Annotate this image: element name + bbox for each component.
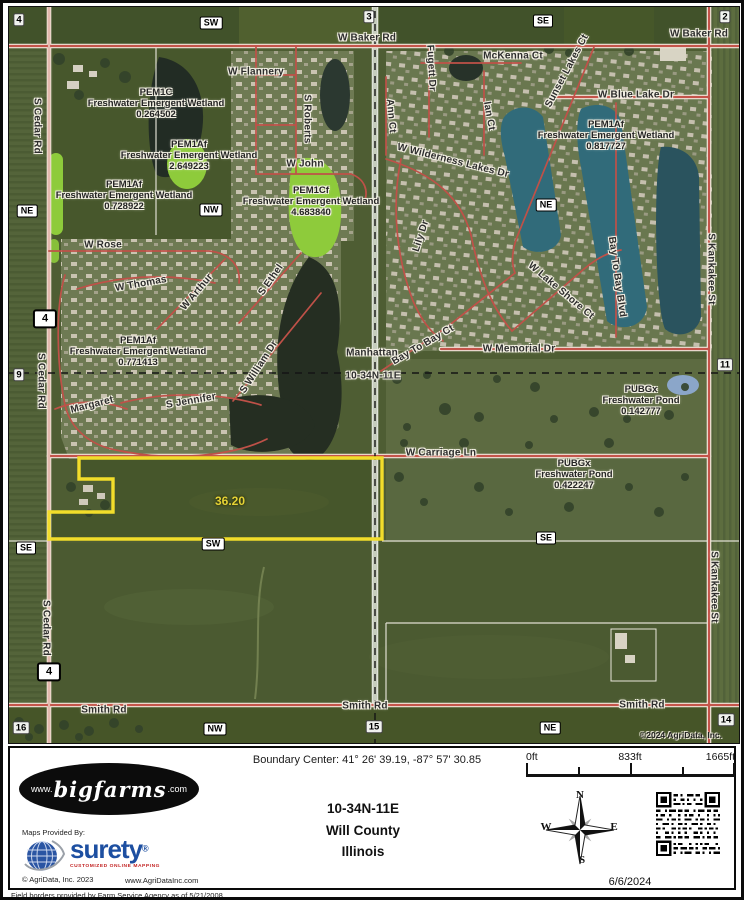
township-id: 10-34N-11E xyxy=(326,798,400,820)
scale-tick xyxy=(578,767,580,776)
agridata-website: www.AgriDataInc.com xyxy=(125,876,198,885)
scale-tick xyxy=(733,763,735,776)
aerial-imagery xyxy=(9,7,739,743)
surety-tagline: CUSTOMIZED ONLINE MAPPING xyxy=(70,864,160,869)
bigfarms-name: bigfarms xyxy=(53,777,166,802)
compass-s: S xyxy=(579,854,585,866)
report-date: 6/6/2024 xyxy=(609,876,652,888)
disclaimer-text: Field borders provided by Farm Service A… xyxy=(11,891,223,900)
compass-e: E xyxy=(610,821,617,833)
bigfarms-logo: www.bigfarms.com xyxy=(19,763,199,815)
compass-w: W xyxy=(541,821,552,833)
boundary-center: Boundary Center: 41° 26' 39.19, -87° 57'… xyxy=(253,754,481,766)
agridata-copyright: © AgriData, Inc. 2023 xyxy=(22,875,93,884)
scale-start: 0ft xyxy=(526,751,538,763)
county-name: Will County xyxy=(326,820,400,842)
scale-end: 1665ft xyxy=(706,751,735,763)
bigfarms-suffix: .com xyxy=(168,784,188,794)
state-name: Illinois xyxy=(326,841,400,863)
qr-code xyxy=(656,791,720,857)
bigfarms-prefix: www. xyxy=(31,784,53,794)
surety-name: surety xyxy=(70,834,142,864)
plat-map-report: W Baker RdW Baker RdW FlanneryS RobertsS… xyxy=(0,0,744,900)
globe-icon xyxy=(22,837,66,875)
scale-tick xyxy=(682,767,684,776)
township-info: 10-34N-11E Will County Illinois xyxy=(326,798,400,863)
surety-logo: surety® CUSTOMIZED ONLINE MAPPING xyxy=(22,837,160,875)
aerial-map: W Baker RdW Baker RdW FlanneryS RobertsS… xyxy=(8,6,740,744)
scale-tick xyxy=(526,763,528,776)
scale-mid: 833ft xyxy=(618,751,641,763)
registered-mark: ® xyxy=(142,844,149,854)
compass-n: N xyxy=(576,789,584,801)
scale-tick xyxy=(630,763,632,776)
footer-panel: Boundary Center: 41° 26' 39.19, -87° 57'… xyxy=(8,746,736,890)
